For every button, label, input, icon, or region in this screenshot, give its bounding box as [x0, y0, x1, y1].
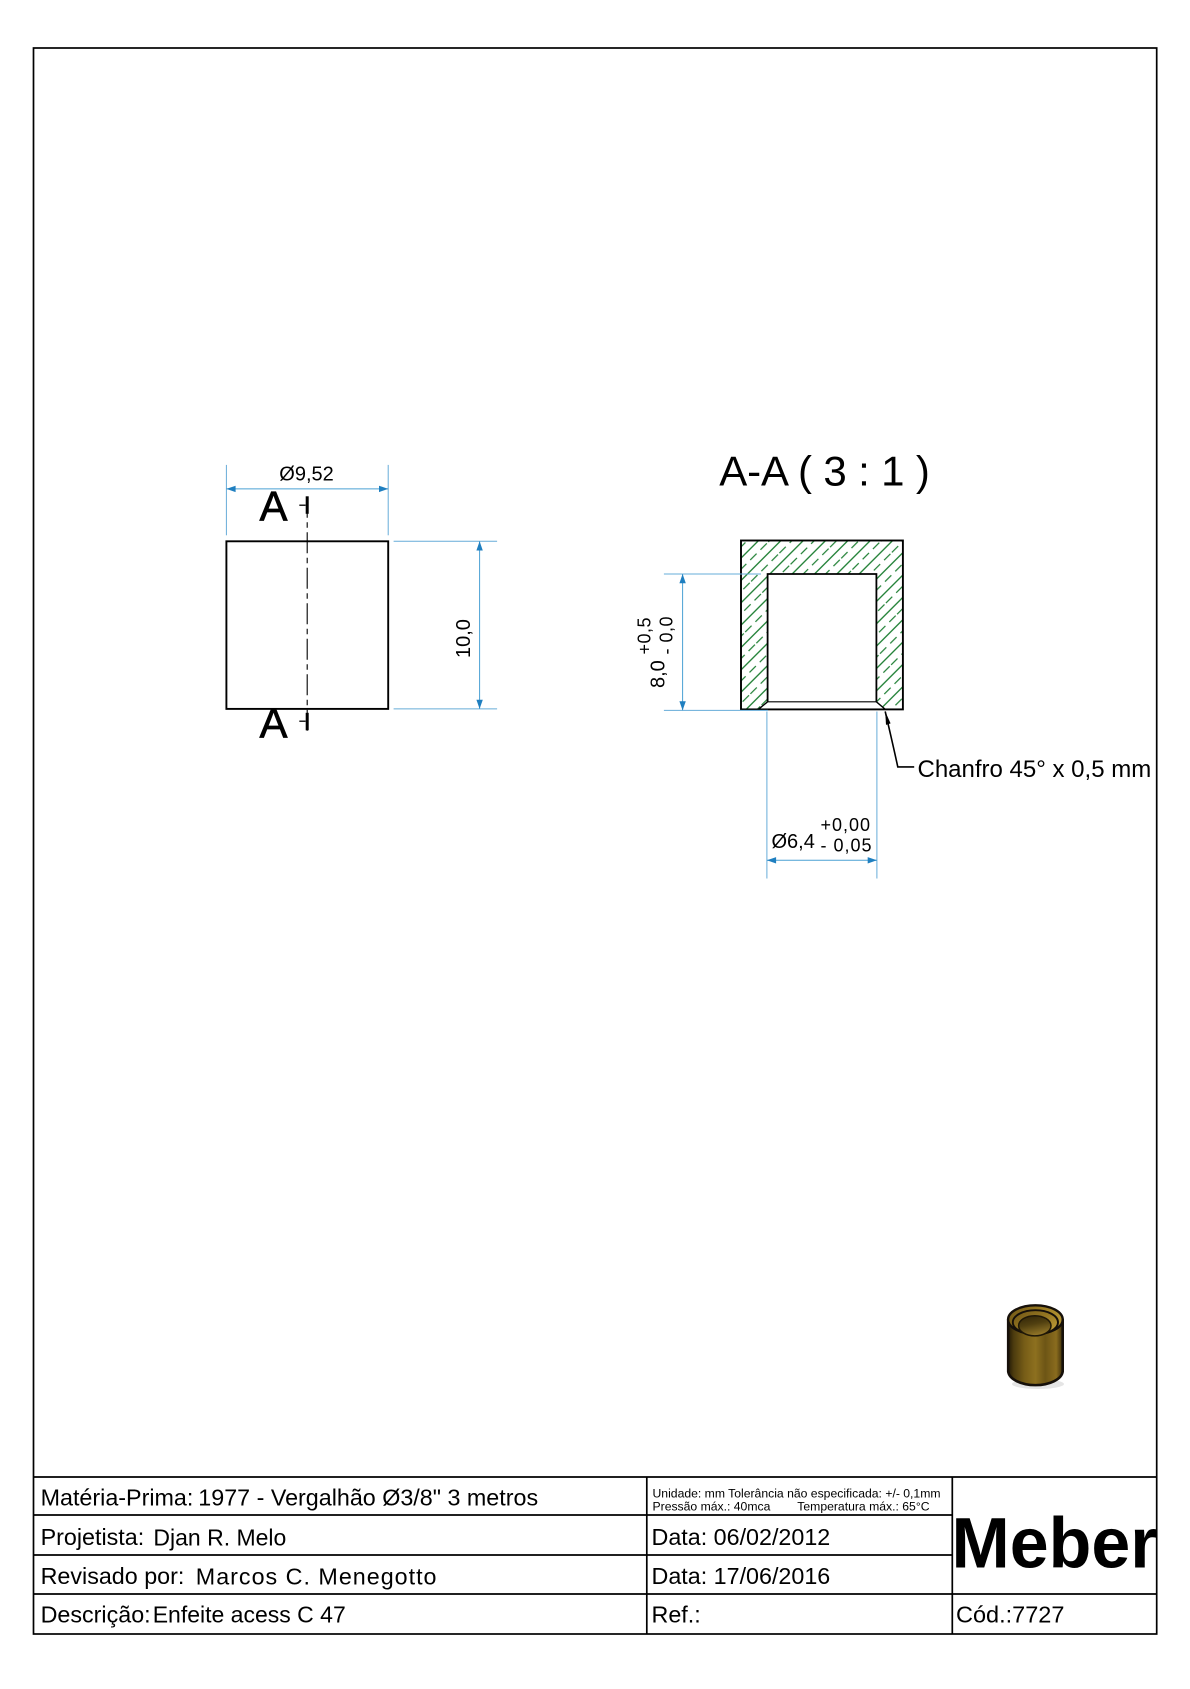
svg-text:Projetista:: Projetista:	[41, 1524, 145, 1550]
svg-text:Data: 06/02/2012: Data: 06/02/2012	[652, 1524, 831, 1550]
svg-text:Temperatura máx.: 65°C: Temperatura máx.: 65°C	[797, 1500, 929, 1514]
svg-text:Descrição:: Descrição:	[41, 1602, 151, 1628]
svg-text:Ø6,4: Ø6,4	[772, 831, 815, 853]
svg-text:- 0,0: - 0,0	[656, 616, 676, 655]
svg-text:1977 - Vergalhão Ø3/8" 3 metro: 1977 - Vergalhão Ø3/8" 3 metros	[198, 1485, 538, 1511]
svg-text:- 0,05: - 0,05	[821, 836, 873, 856]
svg-text:A: A	[260, 700, 288, 747]
svg-text:Revisado por:: Revisado por:	[41, 1563, 185, 1589]
svg-text:Ref.:: Ref.:	[652, 1602, 701, 1628]
svg-text:Cód.:7727: Cód.:7727	[956, 1602, 1064, 1628]
svg-text:Enfeite acess C 47: Enfeite acess C 47	[153, 1602, 346, 1628]
svg-text:Djan R. Melo: Djan R. Melo	[153, 1525, 286, 1551]
svg-text:Meber: Meber	[952, 1505, 1158, 1584]
svg-text:Marcos C. Menegotto: Marcos C. Menegotto	[196, 1564, 438, 1590]
svg-text:Chanfro 45° x 0,5 mm: Chanfro 45° x 0,5 mm	[918, 756, 1152, 783]
svg-text:+0,5: +0,5	[635, 617, 655, 655]
svg-text:A-A ( 3 : 1 ): A-A ( 3 : 1 )	[719, 447, 929, 494]
svg-text:8,0: 8,0	[647, 660, 669, 688]
svg-text:Unidade: mm Tolerância não esp: Unidade: mm Tolerância não especificada:…	[653, 1487, 941, 1501]
svg-text:+0,00: +0,00	[821, 815, 872, 835]
svg-text:Data: 17/06/2016: Data: 17/06/2016	[652, 1563, 831, 1589]
svg-text:Ø9,52: Ø9,52	[279, 463, 333, 485]
svg-text:10,0: 10,0	[453, 619, 475, 658]
svg-text:Pressão máx.: 40mca: Pressão máx.: 40mca	[653, 1500, 771, 1514]
svg-text:Matéria-Prima:: Matéria-Prima:	[41, 1485, 194, 1511]
